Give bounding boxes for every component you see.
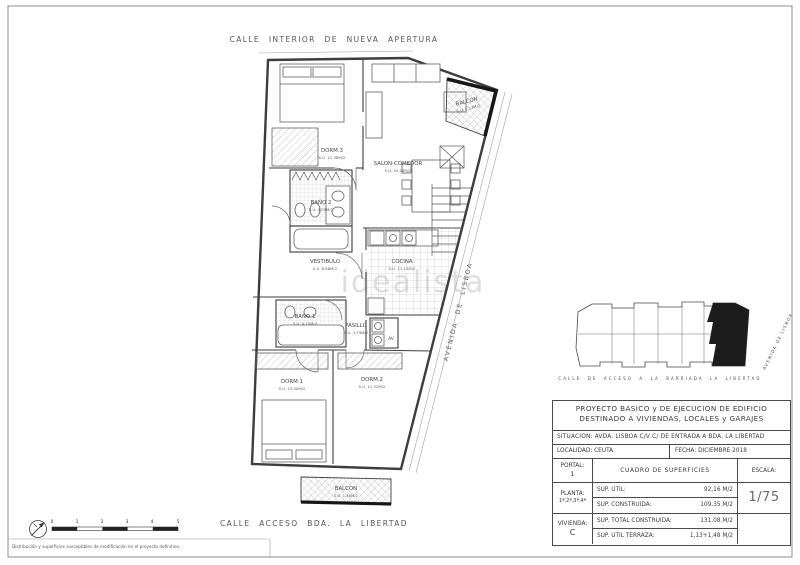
vivienda-cell: VIVIENDA: C bbox=[553, 514, 593, 545]
svg-text:2: 2 bbox=[101, 519, 104, 525]
cuadro-header: CUADRO DE SUPERFICIES bbox=[593, 459, 738, 483]
svg-text:S.U. 20,16M/2: S.U. 20,16M/2 bbox=[385, 168, 412, 173]
escala-label: ESCALA: bbox=[738, 459, 790, 483]
sup-terraza-row: SUP. UTIL TERRAZA:1,13+1,48 M/2 bbox=[593, 529, 738, 544]
escala-value: 1/75 bbox=[738, 483, 790, 514]
street-label-top: CALLE INTERIOR DE NUEVA APERTURA bbox=[230, 35, 439, 44]
project-title-line1: PROYECTO BASICO y DE EJECUCION DE EDIFIC… bbox=[553, 404, 790, 414]
balcony-top: BALCON S.U. 1,13M/2 bbox=[446, 79, 496, 136]
svg-text:0: 0 bbox=[51, 519, 54, 525]
room-label: BALCON bbox=[335, 486, 357, 492]
svg-text:S.U. 12,38M/2: S.U. 12,38M/2 bbox=[319, 155, 346, 160]
bathtub-bath1 bbox=[278, 325, 344, 345]
portal-cell: PORTAL: 1 bbox=[553, 459, 593, 483]
sofa-side bbox=[366, 92, 382, 138]
svg-text:BAÑO 1: BAÑO 1 bbox=[295, 313, 316, 320]
svg-text:S.U. 3,79M/2: S.U. 3,79M/2 bbox=[344, 330, 369, 335]
project-title-line2: DESTINADO A VIVIENDAS, LOCALES y GARAJES bbox=[553, 414, 790, 424]
svg-text:5: 5 bbox=[177, 519, 180, 525]
svg-text:S.U. 4,09M/2: S.U. 4,09M/2 bbox=[309, 207, 334, 212]
svg-text:4: 4 bbox=[151, 519, 154, 525]
footnote-box: Distribución y superficies susceptibles … bbox=[8, 539, 270, 557]
wardrobe-dorm2 bbox=[338, 353, 402, 369]
svg-text:S.U. 4,10M/2: S.U. 4,10M/2 bbox=[293, 321, 318, 326]
svg-text:DORM.3: DORM.3 bbox=[321, 148, 343, 154]
toilet-bath1 bbox=[285, 306, 295, 318]
sup-total-row: SUP. TOTAL CONSTRUIDA:131,08 M/2 bbox=[593, 514, 738, 529]
svg-text:S.U. 6,68M/2: S.U. 6,68M/2 bbox=[313, 266, 338, 271]
svg-text:DORM.1: DORM.1 bbox=[281, 379, 303, 385]
keyplan-highlighted-unit bbox=[707, 303, 749, 366]
svg-text:1: 1 bbox=[76, 519, 79, 525]
footnote-text: Distribución y superficies susceptibles … bbox=[12, 544, 180, 549]
svg-text:SALON-COMEDOR: SALON-COMEDOR bbox=[374, 161, 423, 167]
sup-util-row: SUP. UTIL:92,16 M/2 bbox=[593, 483, 738, 498]
situacion-row: SITUACION: AVDA. LISBOA C/V C/ DE ENTRAD… bbox=[553, 431, 790, 445]
svg-text:BAÑO 2: BAÑO 2 bbox=[311, 199, 332, 206]
title-block: PROYECTO BASICO y DE EJECUCION DE EDIFIC… bbox=[552, 400, 791, 546]
svg-text:3: 3 bbox=[126, 519, 129, 525]
localidad-fecha-row: LOCALIDAD: CEUTA FECHA: DICIEMBRE 2018 bbox=[553, 445, 790, 459]
svg-text:S.U. 12,32M/2: S.U. 12,32M/2 bbox=[359, 384, 386, 389]
localidad-cell: LOCALIDAD: CEUTA bbox=[553, 445, 670, 458]
svg-text:DORM.2: DORM.2 bbox=[361, 377, 383, 383]
sup-construida-row: SUP. CONSTRUIDA:109,35 M/2 bbox=[593, 498, 738, 513]
key-plan: CALLE DE ACCESO A LA BARRIADA LA LIBERTA… bbox=[558, 302, 793, 381]
bathtub-bath2 bbox=[294, 229, 348, 249]
keyplan-street-right: AVENIDA DE LISBOA bbox=[762, 312, 794, 370]
toilet-bath2 bbox=[295, 203, 305, 217]
sofa bbox=[372, 64, 440, 82]
svg-text:AVENIDA DE LISBOA: AVENIDA DE LISBOA bbox=[762, 312, 794, 370]
svg-text:S.U. 15,00M/2: S.U. 15,00M/2 bbox=[279, 386, 306, 391]
project-title: PROYECTO BASICO y DE EJECUCION DE EDIFIC… bbox=[553, 401, 790, 431]
svg-text:S.U. 11,15M/2: S.U. 11,15M/2 bbox=[389, 266, 416, 271]
fridge bbox=[368, 298, 384, 314]
balcony-bottom: BALCON S.U. 1,48M/2 bbox=[301, 477, 391, 504]
wardrobe-dorm1 bbox=[256, 353, 328, 369]
compass bbox=[30, 521, 47, 538]
escala-empty-cell bbox=[738, 514, 790, 545]
wardrobe-dorm3 bbox=[272, 128, 318, 166]
surfaces-table: PORTAL: 1 CUADRO DE SUPERFICIES ESCALA: … bbox=[553, 459, 790, 544]
planta-cell: PLANTA: 1ª,2ª,3ª,4ª bbox=[553, 483, 593, 514]
svg-text:VESTIBULO: VESTIBULO bbox=[310, 259, 340, 265]
svg-text:COCINA: COCINA bbox=[391, 259, 412, 265]
svg-text:PASILLO: PASILLO bbox=[345, 323, 367, 329]
room-area: S.U. 1,48M/2 bbox=[334, 493, 359, 498]
street-label-bottom: CALLE ACCESO BDA. LA LIBERTAD bbox=[220, 519, 408, 528]
svg-text:AV: AV bbox=[388, 336, 394, 341]
drawing-sheet: idealista CALLE INTERIOR DE NUEVA APERTU… bbox=[0, 0, 800, 565]
keyplan-street-bottom: CALLE DE ACCESO A LA BARRIADA LA LIBERTA… bbox=[558, 376, 761, 381]
scale-bar: 0 1 2 3 4 5 bbox=[51, 519, 180, 531]
fecha-cell: FECHA: DICIEMBRE 2018 bbox=[670, 445, 790, 458]
